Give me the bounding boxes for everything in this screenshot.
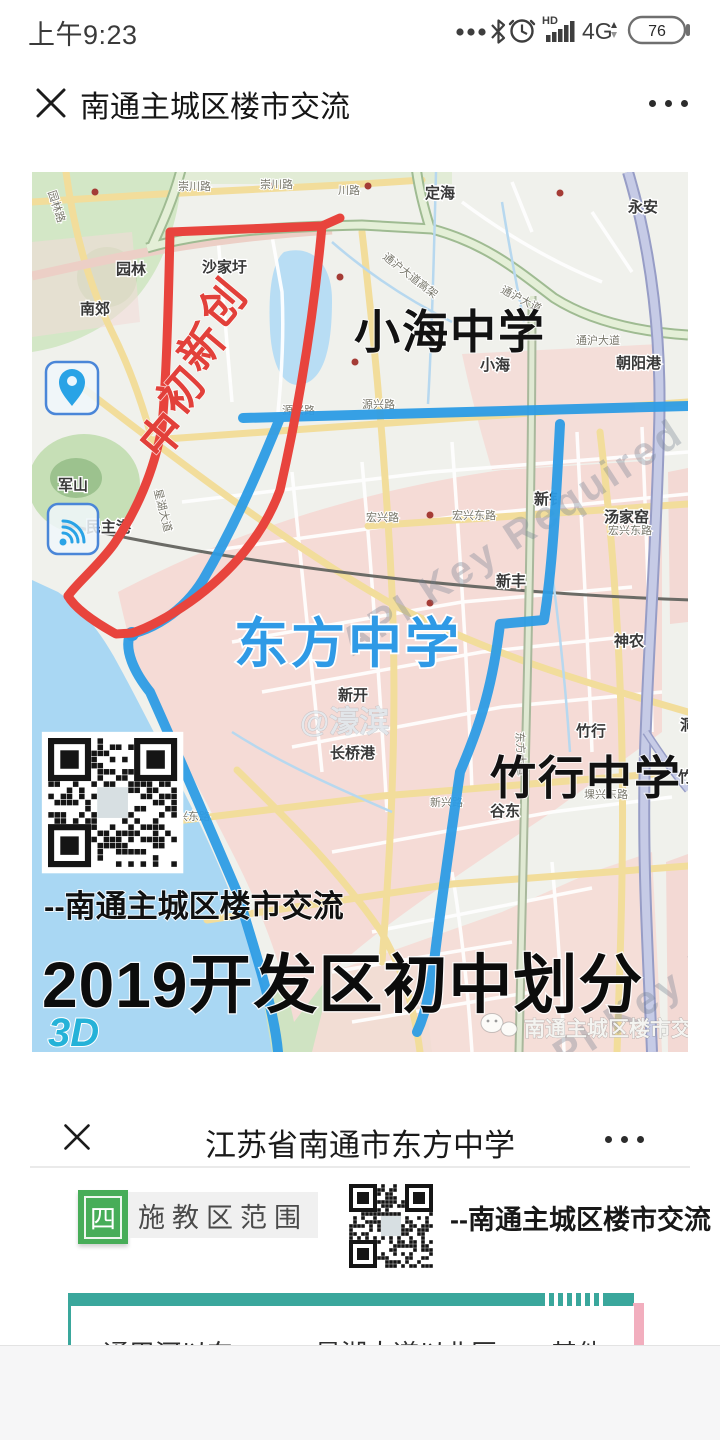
network-type-label: 4G [582, 18, 613, 44]
article-header: 江苏省南通市东方中学 [0, 1108, 720, 1168]
locate-button [46, 362, 98, 414]
svg-text:竹行: 竹行 [575, 722, 606, 740]
header-divider [30, 1166, 690, 1168]
svg-text:洞: 洞 [680, 717, 688, 734]
svg-text:园林: 园林 [116, 260, 147, 278]
svg-text:宏兴路: 宏兴路 [366, 510, 399, 524]
svg-text:南郊: 南郊 [80, 300, 110, 318]
android-nav-bar [0, 1345, 720, 1440]
handle-watermark: @濠滨 [300, 705, 389, 739]
svg-text:定海: 定海 [425, 184, 455, 202]
svg-text:南通主城区楼市交流: 南通主城区楼市交流 [524, 1017, 688, 1041]
svg-text:汤家窑: 汤家窑 [604, 508, 649, 526]
qr-code-section [345, 1180, 437, 1272]
table-cell: 星湖大道以北区 [315, 1334, 497, 1345]
svg-text:宏兴东路: 宏兴东路 [452, 508, 496, 522]
more-menu-icon[interactable] [649, 100, 688, 107]
svg-text:朝阳港: 朝阳港 [616, 354, 662, 372]
svg-text:新开: 新开 [338, 686, 368, 704]
signal-hd-icon: HD [542, 15, 575, 42]
table-cell: 其他 [551, 1334, 603, 1345]
svg-text:长桥港: 长桥港 [330, 744, 376, 762]
svg-text:HD: HD [542, 15, 558, 27]
svg-text:源兴路: 源兴路 [362, 397, 395, 411]
svg-text:小海: 小海 [480, 356, 510, 374]
svg-text:谷东: 谷东 [490, 802, 520, 820]
svg-text:崇川路: 崇川路 [178, 180, 211, 193]
alarm-icon [510, 21, 534, 42]
battery-icon: 76 [629, 17, 690, 43]
table-top-border [68, 1293, 634, 1306]
section-caption: --南通主城区楼市交流 [450, 1198, 711, 1237]
svg-text:军山: 军山 [58, 477, 88, 494]
notification-dots-icon [456, 28, 485, 35]
status-icons: HD 4G 76 [454, 8, 704, 48]
clock-time: 上午9:23 [28, 13, 138, 52]
svg-text:通沪大道: 通沪大道 [576, 333, 620, 347]
phone-screen: 上午9:23 HD [0, 0, 720, 1440]
school-label-xiaohai: 小海中学 [354, 306, 546, 358]
svg-text:崇川路: 崇川路 [260, 178, 293, 191]
section-number-badge: 四 [78, 1190, 128, 1244]
svg-text:永安: 永安 [627, 198, 658, 216]
svg-text:新丰: 新丰 [496, 572, 526, 590]
map-title: 2019开发区初中划分 [42, 949, 643, 1021]
traffic-button [48, 504, 98, 554]
section-heading: 施教区范围 [128, 1192, 318, 1238]
school-label-dongfang: 东方中学 [234, 614, 462, 674]
district-table-clipped: 通甲河以东 星湖大道以北区 其他 [68, 1306, 634, 1345]
battery-percent: 76 [648, 23, 666, 40]
chat-title: 南通主城区楼市交流 [80, 82, 350, 126]
qr-code-map [42, 732, 183, 873]
district-map-image[interactable]: 崇川路崇川路川路园林路通沪大道高架通沪大道通沪大道源兴路源兴路星湖大道宏兴路宏兴… [32, 172, 688, 1052]
svg-text:川路: 川路 [338, 184, 360, 197]
more-menu-icon[interactable] [605, 1136, 644, 1143]
svg-text:沙家圩: 沙家圩 [202, 258, 247, 276]
bluetooth-icon [492, 21, 504, 43]
table-cell: 通甲河以东 [103, 1334, 233, 1345]
3d-toggle: 3D [48, 1011, 99, 1052]
svg-text:神农: 神农 [614, 632, 644, 650]
chat-header: 南通主城区楼市交流 [0, 58, 720, 150]
school-label-zhuxing: 竹行中学 [490, 752, 682, 804]
map-caption: --南通主城区楼市交流 [44, 889, 344, 924]
close-icon[interactable] [34, 86, 68, 120]
status-bar: 上午9:23 HD [0, 0, 720, 58]
table-pink-accent [633, 1303, 644, 1345]
